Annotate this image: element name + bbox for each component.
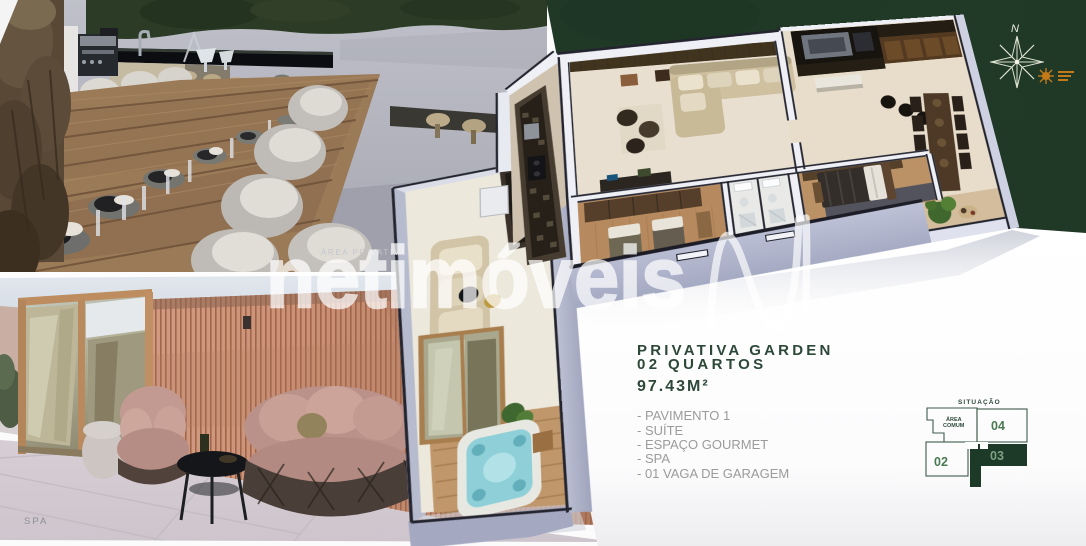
svg-text:- ESPAÇO GOURMET: - ESPAÇO GOURMET [637,437,768,452]
svg-text:- PAVIMENTO 1: - PAVIMENTO 1 [637,408,730,423]
svg-text:- 01 VAGA DE GARAGEM: - 01 VAGA DE GARAGEM [637,466,789,481]
svg-text:netimóveis: netimóveis [266,230,686,326]
svg-text:02: 02 [934,455,948,469]
svg-text:- SPA: - SPA [637,451,670,466]
svg-text:COMUM: COMUM [943,423,965,429]
svg-text:SPA: SPA [24,516,48,527]
svg-text:97.43M²: 97.43M² [637,378,710,395]
svg-text:- SUÍTE: - SUÍTE [637,423,684,438]
svg-text:03: 03 [990,449,1004,463]
svg-text:02 QUARTOS: 02 QUARTOS [637,356,767,373]
svg-text:SITUAÇÃO: SITUAÇÃO [958,397,1001,406]
svg-text:ÁREA: ÁREA [946,416,962,423]
svg-text:04: 04 [991,419,1005,433]
